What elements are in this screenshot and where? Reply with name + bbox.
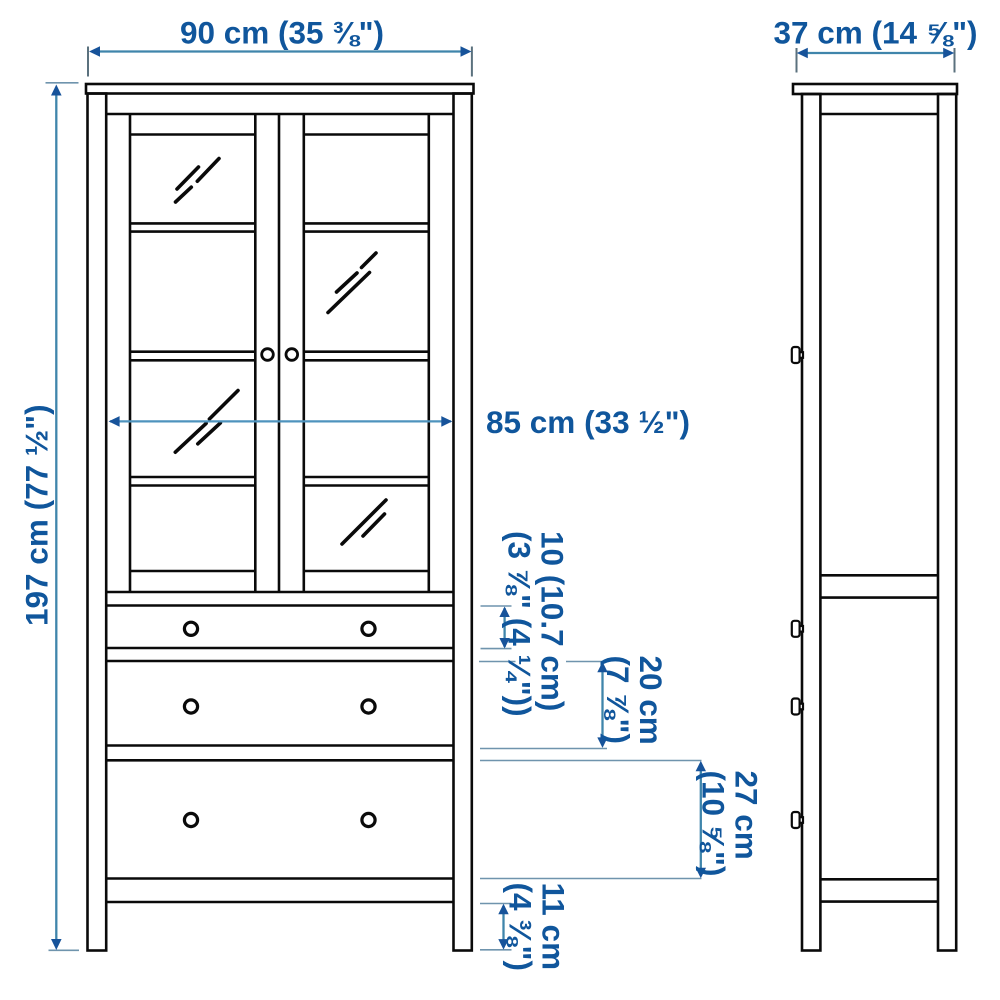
svg-text:11 cm: 11 cm (536, 883, 572, 971)
svg-text:85 cm (33 ½"): 85 cm (33 ½") (486, 404, 690, 440)
svg-text:10 (10.7 cm): 10 (10.7 cm) (535, 531, 571, 711)
svg-text:20 cm: 20 cm (633, 656, 669, 745)
svg-text:(10 ⅝"): (10 ⅝") (696, 771, 732, 877)
svg-text:90 cm (35 ⅜"): 90 cm (35 ⅜") (180, 15, 384, 51)
svg-text:(3 ⅞" (4 ¼")): (3 ⅞" (4 ¼")) (502, 531, 538, 717)
svg-text:37 cm (14 ⅝"): 37 cm (14 ⅝") (773, 15, 977, 51)
svg-text:(4 ⅜"): (4 ⅜") (503, 883, 539, 971)
svg-text:27 cm: 27 cm (729, 771, 765, 860)
svg-text:(7 ⅞"): (7 ⅞") (600, 656, 636, 744)
svg-text:197 cm (77 ½"): 197 cm (77 ½") (19, 404, 55, 626)
